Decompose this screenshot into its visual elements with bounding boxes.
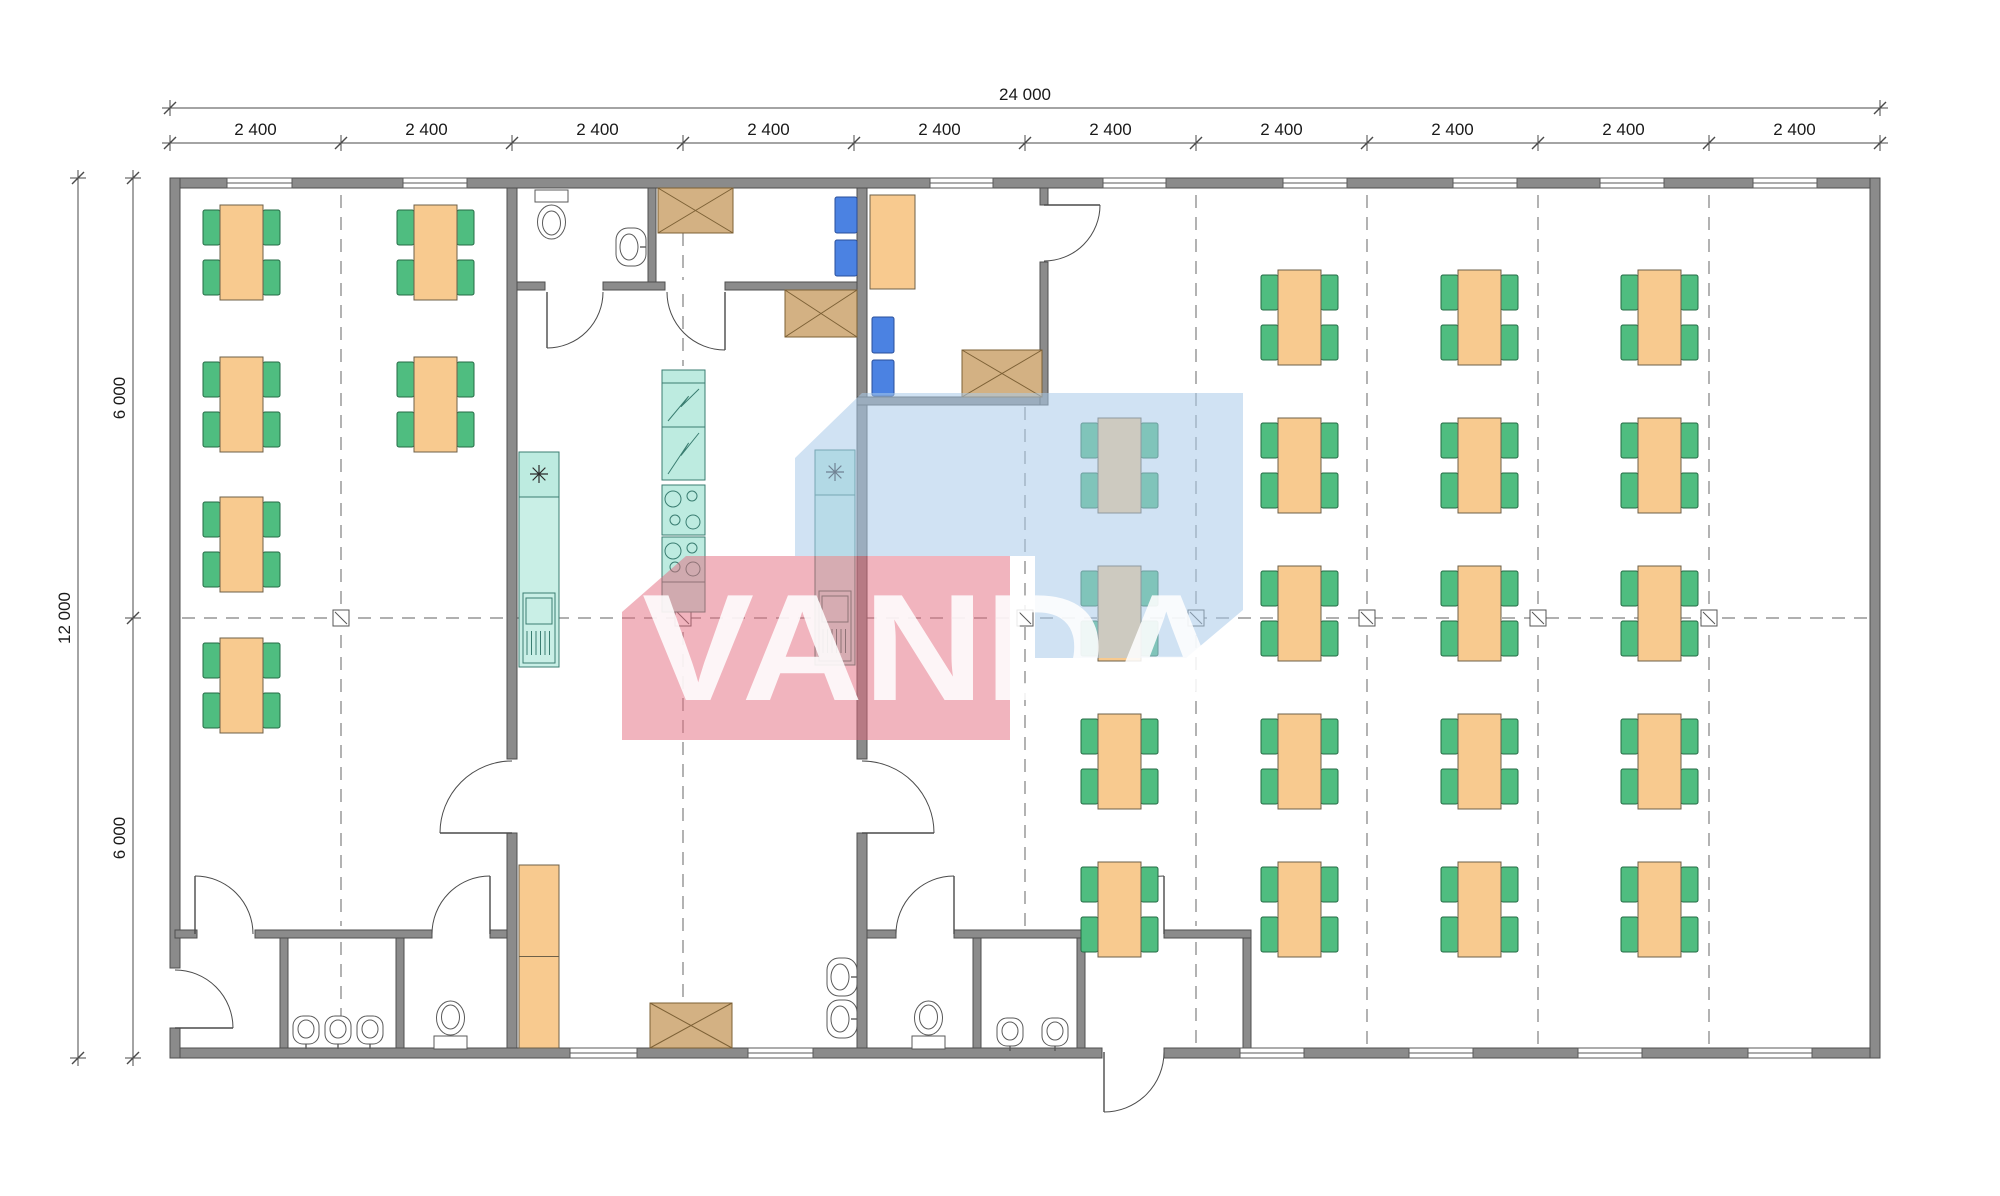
outer-wall-left-lower xyxy=(170,1028,180,1058)
table-top xyxy=(220,638,263,733)
chair xyxy=(1321,473,1338,508)
chair xyxy=(1681,423,1698,458)
window xyxy=(930,178,993,188)
table-top xyxy=(1638,418,1681,513)
dim-label-height-segment: 6 000 xyxy=(110,817,129,860)
chair xyxy=(1621,917,1638,952)
floor-plan-svg: 24 0002 4002 4002 4002 4002 4002 4002 40… xyxy=(0,0,2000,1196)
chair xyxy=(1261,275,1278,310)
chair xyxy=(1621,867,1638,902)
chair xyxy=(1621,275,1638,310)
stack-cap xyxy=(662,370,705,383)
chair xyxy=(1261,867,1278,902)
bowl xyxy=(437,1001,465,1035)
table-top xyxy=(414,205,457,300)
toilet xyxy=(535,190,568,239)
window xyxy=(1453,178,1517,188)
chair xyxy=(1621,621,1638,656)
chair xyxy=(1501,769,1518,804)
table-top xyxy=(220,357,263,452)
wc-top-block-wall xyxy=(603,282,665,290)
blue-chair xyxy=(872,360,894,396)
dim-label-segment: 2 400 xyxy=(1602,120,1645,139)
chair xyxy=(397,260,414,295)
chair xyxy=(1441,719,1458,754)
toilet xyxy=(434,1001,467,1049)
chair xyxy=(1261,917,1278,952)
wall-sink xyxy=(827,1000,857,1038)
cistern xyxy=(535,190,568,202)
chair xyxy=(1681,917,1698,952)
window xyxy=(748,1048,813,1058)
chair xyxy=(1141,769,1158,804)
blue-chair xyxy=(835,240,857,276)
chair xyxy=(1441,621,1458,656)
chair xyxy=(1261,325,1278,360)
chair xyxy=(1681,769,1698,804)
table-top xyxy=(1458,270,1501,365)
chair xyxy=(1441,325,1458,360)
dim-label-segment: 2 400 xyxy=(1773,120,1816,139)
cabinet-crossed xyxy=(650,1003,732,1048)
window xyxy=(1240,1048,1304,1058)
chair xyxy=(1681,719,1698,754)
bowl xyxy=(538,205,566,239)
kitchen-cabinet xyxy=(519,865,559,1048)
outer-wall-right xyxy=(1870,178,1880,1058)
grid-marker xyxy=(333,610,349,626)
chair xyxy=(1621,325,1638,360)
kitchen-east-wall-lower xyxy=(857,833,867,1048)
table-top xyxy=(1278,714,1321,809)
chair xyxy=(263,260,280,295)
chair xyxy=(203,210,220,245)
watermark-text: VANDA xyxy=(642,563,1227,733)
chair xyxy=(1261,769,1278,804)
chair xyxy=(1501,571,1518,606)
table-top xyxy=(1638,566,1681,661)
chair xyxy=(457,362,474,397)
blue-chair xyxy=(872,317,894,353)
chair xyxy=(1681,621,1698,656)
table-top xyxy=(414,357,457,452)
window xyxy=(1283,178,1347,188)
chair xyxy=(1501,917,1518,952)
window xyxy=(570,1048,637,1058)
chair xyxy=(1321,917,1338,952)
chair xyxy=(1261,621,1278,656)
table-top xyxy=(1278,566,1321,661)
dim-label-segment: 2 400 xyxy=(576,120,619,139)
table-top xyxy=(1458,862,1501,957)
window xyxy=(1748,1048,1812,1058)
dim-label-segment: 2 400 xyxy=(1260,120,1303,139)
chair xyxy=(263,552,280,587)
chair xyxy=(1321,769,1338,804)
chair xyxy=(263,412,280,447)
table-top xyxy=(1458,566,1501,661)
chair xyxy=(397,210,414,245)
dim-label-segment: 2 400 xyxy=(234,120,277,139)
chair xyxy=(1321,571,1338,606)
south-washroom-divider xyxy=(1077,938,1085,1048)
cistern xyxy=(912,1036,945,1049)
table-top xyxy=(220,205,263,300)
chair xyxy=(1681,571,1698,606)
chair xyxy=(263,693,280,728)
dim-label-total-width: 24 000 xyxy=(999,85,1051,104)
outer-wall-left-upper xyxy=(170,178,180,968)
chair xyxy=(203,362,220,397)
grid-marker xyxy=(1359,610,1375,626)
window xyxy=(1753,178,1817,188)
chair xyxy=(1261,719,1278,754)
chair xyxy=(1441,571,1458,606)
chair xyxy=(203,643,220,678)
dim-label-segment: 2 400 xyxy=(405,120,448,139)
office-desk xyxy=(870,195,915,289)
cabinet-crossed xyxy=(658,188,733,233)
chair xyxy=(1441,867,1458,902)
chair xyxy=(1321,275,1338,310)
plan-root: 24 0002 4002 4002 4002 4002 4002 4002 40… xyxy=(0,0,2000,1196)
kitchen-counter-west xyxy=(519,452,559,667)
chair xyxy=(1501,867,1518,902)
office-east-wall xyxy=(1040,188,1048,205)
kitchen-west-wall-upper xyxy=(507,188,517,759)
floor-plan: 24 0002 4002 4002 4002 4002 4002 4002 40… xyxy=(0,0,2000,1196)
chair xyxy=(1441,769,1458,804)
chair xyxy=(1681,325,1698,360)
chair xyxy=(1681,867,1698,902)
chair xyxy=(1621,423,1638,458)
sw-block-top-wall xyxy=(175,930,197,938)
dim-label-segment: 2 400 xyxy=(1089,120,1132,139)
washroom-wc-divider xyxy=(396,938,404,1048)
chair xyxy=(1621,473,1638,508)
chair xyxy=(1621,719,1638,754)
chair xyxy=(397,412,414,447)
south-wc-divider xyxy=(973,938,981,1048)
chair xyxy=(1321,719,1338,754)
chair xyxy=(203,412,220,447)
window xyxy=(1103,178,1166,188)
chair xyxy=(1081,867,1098,902)
chair xyxy=(1081,917,1098,952)
kitchen-west-wall-lower xyxy=(507,833,517,1048)
chair xyxy=(203,502,220,537)
chair xyxy=(1261,571,1278,606)
table-top xyxy=(1098,862,1141,957)
window xyxy=(227,178,292,188)
grid-marker xyxy=(1701,610,1717,626)
table-top xyxy=(1458,714,1501,809)
window xyxy=(1600,178,1664,188)
chair xyxy=(1321,621,1338,656)
chair xyxy=(1501,275,1518,310)
chair xyxy=(1501,719,1518,754)
dim-label-height-segment: 6 000 xyxy=(110,377,129,420)
dim-label-segment: 2 400 xyxy=(747,120,790,139)
chair xyxy=(1621,769,1638,804)
vestibule-washroom-divider xyxy=(280,938,288,1048)
table-top xyxy=(1278,418,1321,513)
chair xyxy=(1321,867,1338,902)
window xyxy=(403,178,467,188)
chair xyxy=(1681,275,1698,310)
chair xyxy=(203,260,220,295)
wc-top-block-wall xyxy=(725,282,857,290)
chair xyxy=(203,552,220,587)
chair xyxy=(1501,621,1518,656)
grid-marker xyxy=(1530,610,1546,626)
cabinet-crossed xyxy=(785,290,857,337)
table-top xyxy=(220,497,263,592)
bowl xyxy=(915,1001,943,1035)
chair xyxy=(263,502,280,537)
cistern xyxy=(434,1036,467,1049)
wc-divider-wall xyxy=(648,188,656,282)
toilet xyxy=(912,1001,945,1049)
cabinet-crossed xyxy=(962,350,1042,397)
wall-sink xyxy=(827,958,857,996)
dim-label-segment: 2 400 xyxy=(1431,120,1474,139)
chair xyxy=(1441,275,1458,310)
chair xyxy=(457,210,474,245)
chair xyxy=(1501,325,1518,360)
chair xyxy=(1261,423,1278,458)
table-top xyxy=(1278,862,1321,957)
dim-label-total-height: 12 000 xyxy=(55,592,74,644)
chair xyxy=(1621,571,1638,606)
chair xyxy=(1321,423,1338,458)
chair xyxy=(1441,423,1458,458)
chair xyxy=(457,412,474,447)
table-top xyxy=(1458,418,1501,513)
chair xyxy=(1261,473,1278,508)
chair xyxy=(1141,917,1158,952)
sink-unit xyxy=(523,593,555,663)
south-block-top-wall xyxy=(1164,930,1251,938)
window xyxy=(1409,1048,1473,1058)
chair xyxy=(263,210,280,245)
table-top xyxy=(1638,862,1681,957)
sw-block-top-wall xyxy=(255,930,432,938)
south-vestibule-east-wall xyxy=(1243,938,1251,1048)
blue-chair xyxy=(835,197,857,233)
sw-block-top-wall xyxy=(490,930,507,938)
chair xyxy=(1141,867,1158,902)
chair xyxy=(203,693,220,728)
chair xyxy=(263,362,280,397)
fridge xyxy=(662,427,705,480)
dim-label-segment: 2 400 xyxy=(918,120,961,139)
chair xyxy=(1441,917,1458,952)
chair xyxy=(397,362,414,397)
table-top xyxy=(1638,714,1681,809)
chair xyxy=(1081,769,1098,804)
chair xyxy=(1501,423,1518,458)
chair xyxy=(1441,473,1458,508)
chair xyxy=(1321,325,1338,360)
chair xyxy=(1681,473,1698,508)
south-block-top-wall xyxy=(867,930,896,938)
wc-top-block-wall xyxy=(517,282,545,290)
table-top xyxy=(1278,270,1321,365)
window xyxy=(1578,1048,1642,1058)
chair xyxy=(1501,473,1518,508)
wall-sink xyxy=(616,228,646,266)
chair xyxy=(457,260,474,295)
chair xyxy=(263,643,280,678)
table-top xyxy=(1638,270,1681,365)
